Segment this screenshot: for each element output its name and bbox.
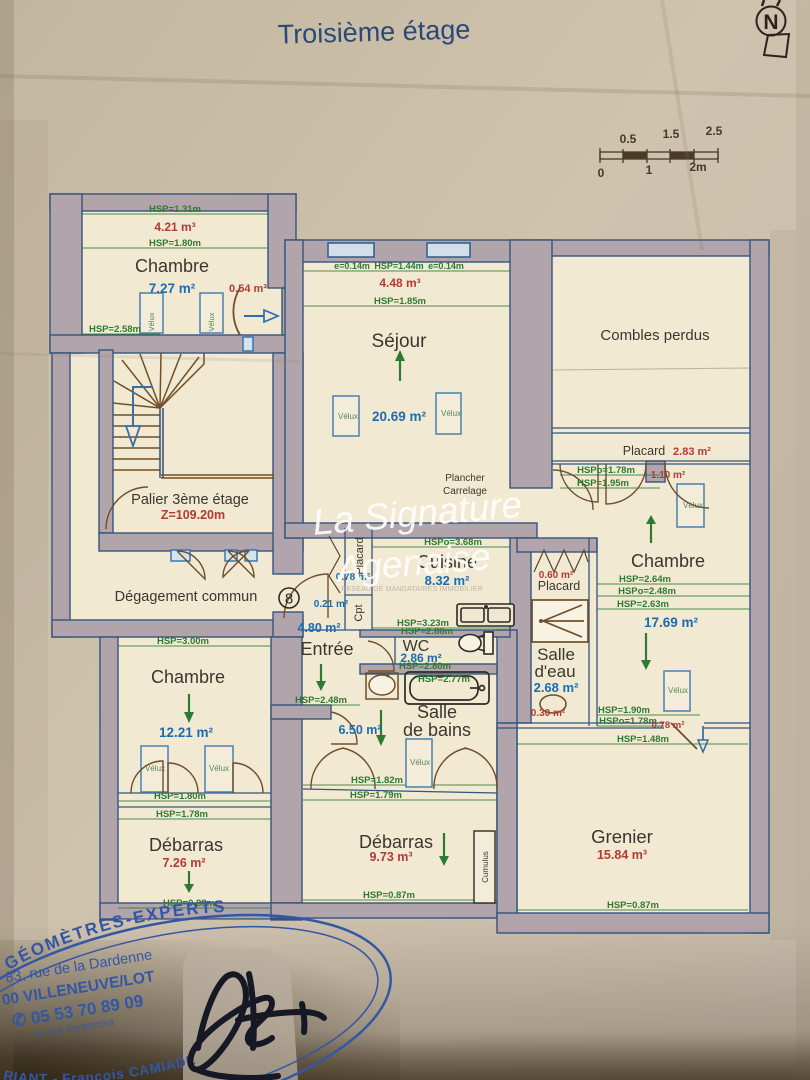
svg-text:Placard: Placard <box>623 444 665 458</box>
svg-text:Combles perdus: Combles perdus <box>600 327 709 344</box>
svg-text:HSP=2.77m: HSP=2.77m <box>418 674 470 685</box>
svg-text:9.73 m³: 9.73 m³ <box>369 850 412 864</box>
svg-text:2.5: 2.5 <box>706 124 723 138</box>
svg-text:HSP=1.31m: HSP=1.31m <box>149 204 201 215</box>
svg-text:HSP=1.85m: HSP=1.85m <box>374 296 426 307</box>
svg-text:d'eau: d'eau <box>534 662 575 681</box>
svg-text:Entrée: Entrée <box>300 639 353 659</box>
svg-text:HSP=2.88m: HSP=2.88m <box>401 626 453 637</box>
svg-text:Séjour: Séjour <box>372 331 428 352</box>
svg-text:Chambre: Chambre <box>135 256 209 276</box>
svg-text:HSP=2.48m: HSP=2.48m <box>295 695 347 706</box>
svg-text:Vélux: Vélux <box>441 409 461 418</box>
svg-text:HSPo=1.78m: HSPo=1.78m <box>577 465 635 476</box>
svg-text:Vélux: Vélux <box>147 312 156 331</box>
svg-text:17.69 m²: 17.69 m² <box>644 615 699 630</box>
svg-text:HSPo=1.78m: HSPo=1.78m <box>599 716 657 727</box>
svg-text:4.48 m³: 4.48 m³ <box>379 276 420 290</box>
svg-text:0.21 m²: 0.21 m² <box>314 599 349 610</box>
svg-text:7.26 m²: 7.26 m² <box>162 856 205 870</box>
svg-text:Débarras: Débarras <box>359 832 433 852</box>
svg-text:Salle: Salle <box>417 702 457 722</box>
svg-text:HSP=2.63m: HSP=2.63m <box>617 599 669 610</box>
svg-text:0: 0 <box>598 166 605 180</box>
svg-text:Grenier: Grenier <box>591 826 653 847</box>
svg-text:Cpt: Cpt <box>353 604 365 621</box>
svg-text:HSP=1.82m: HSP=1.82m <box>351 775 403 786</box>
svg-text:4.80 m²: 4.80 m² <box>297 621 340 635</box>
svg-text:HSP=3.00m: HSP=3.00m <box>157 636 209 647</box>
svg-text:Vélux: Vélux <box>668 686 688 695</box>
svg-text:HSP=1.48m: HSP=1.48m <box>617 734 669 745</box>
svg-text:20.69 m²: 20.69 m² <box>372 409 427 424</box>
svg-text:HSP=1.80m: HSP=1.80m <box>154 791 206 802</box>
svg-text:7.27 m²: 7.27 m² <box>149 281 196 296</box>
svg-text:2.68 m²: 2.68 m² <box>534 680 579 695</box>
svg-text:0.5: 0.5 <box>620 132 637 146</box>
svg-text:N: N <box>763 11 778 34</box>
svg-text:0.54 m³: 0.54 m³ <box>229 283 267 295</box>
svg-text:RESEAU DE MANDATAIRES IMMOBILI: RESEAU DE MANDATAIRES IMMOBILIER <box>341 586 483 593</box>
svg-text:8: 8 <box>285 591 293 608</box>
svg-text:HSP=1.80m: HSP=1.80m <box>149 238 201 249</box>
svg-text:WC: WC <box>403 638 430 655</box>
svg-text:Vélux: Vélux <box>338 412 358 421</box>
svg-text:6.50 m²: 6.50 m² <box>338 723 381 737</box>
svg-text:12.21 m²: 12.21 m² <box>159 725 214 740</box>
svg-text:Vélux: Vélux <box>410 758 430 767</box>
svg-text:0.78 m²: 0.78 m² <box>652 720 685 731</box>
svg-text:HSP=1.79m: HSP=1.79m <box>350 790 402 801</box>
svg-text:2m: 2m <box>689 160 706 174</box>
svg-text:HSP=1.95m: HSP=1.95m <box>577 478 629 489</box>
svg-text:Plancher: Plancher <box>445 473 485 484</box>
svg-text:HSPo=2.48m: HSPo=2.48m <box>618 586 676 597</box>
svg-text:e=0.14m: e=0.14m <box>334 261 370 271</box>
svg-text:Troisième étage: Troisième étage <box>277 14 470 49</box>
svg-text:HSP=0.87m: HSP=0.87m <box>607 900 659 911</box>
svg-text:Z=109.20m: Z=109.20m <box>161 508 225 522</box>
svg-text:1.10 m²: 1.10 m² <box>651 470 686 481</box>
svg-text:1: 1 <box>646 163 653 177</box>
svg-text:HSP=2.58m: HSP=2.58m <box>89 324 141 335</box>
svg-text:Dégagement commun: Dégagement commun <box>115 589 258 605</box>
svg-text:HSP=2.64m: HSP=2.64m <box>619 574 671 585</box>
svg-text:15.84 m³: 15.84 m³ <box>597 848 647 862</box>
svg-text:2.83 m²: 2.83 m² <box>673 446 711 458</box>
svg-text:e=0.14m: e=0.14m <box>428 261 464 271</box>
svg-text:Vélux: Vélux <box>209 764 229 773</box>
svg-text:Vélux: Vélux <box>207 312 216 331</box>
svg-text:4.21 m³: 4.21 m³ <box>154 220 195 234</box>
svg-text:HSP=1.78m: HSP=1.78m <box>156 809 208 820</box>
svg-text:Chambre: Chambre <box>151 667 225 687</box>
svg-text:HSP=1.90m: HSP=1.90m <box>598 705 650 716</box>
svg-text:Cumulus: Cumulus <box>481 851 490 883</box>
svg-text:HSP=0.87m: HSP=0.87m <box>363 890 415 901</box>
svg-text:Palier 3ème étage: Palier 3ème étage <box>131 492 249 508</box>
svg-text:0.30 m²: 0.30 m² <box>531 708 566 719</box>
svg-text:Chambre: Chambre <box>631 551 705 571</box>
svg-text:de bains: de bains <box>403 720 471 740</box>
svg-text:Débarras: Débarras <box>149 835 223 855</box>
svg-text:HSP=1.44m: HSP=1.44m <box>374 261 423 271</box>
svg-text:Placard: Placard <box>538 579 580 593</box>
svg-text:1.5: 1.5 <box>663 127 680 141</box>
